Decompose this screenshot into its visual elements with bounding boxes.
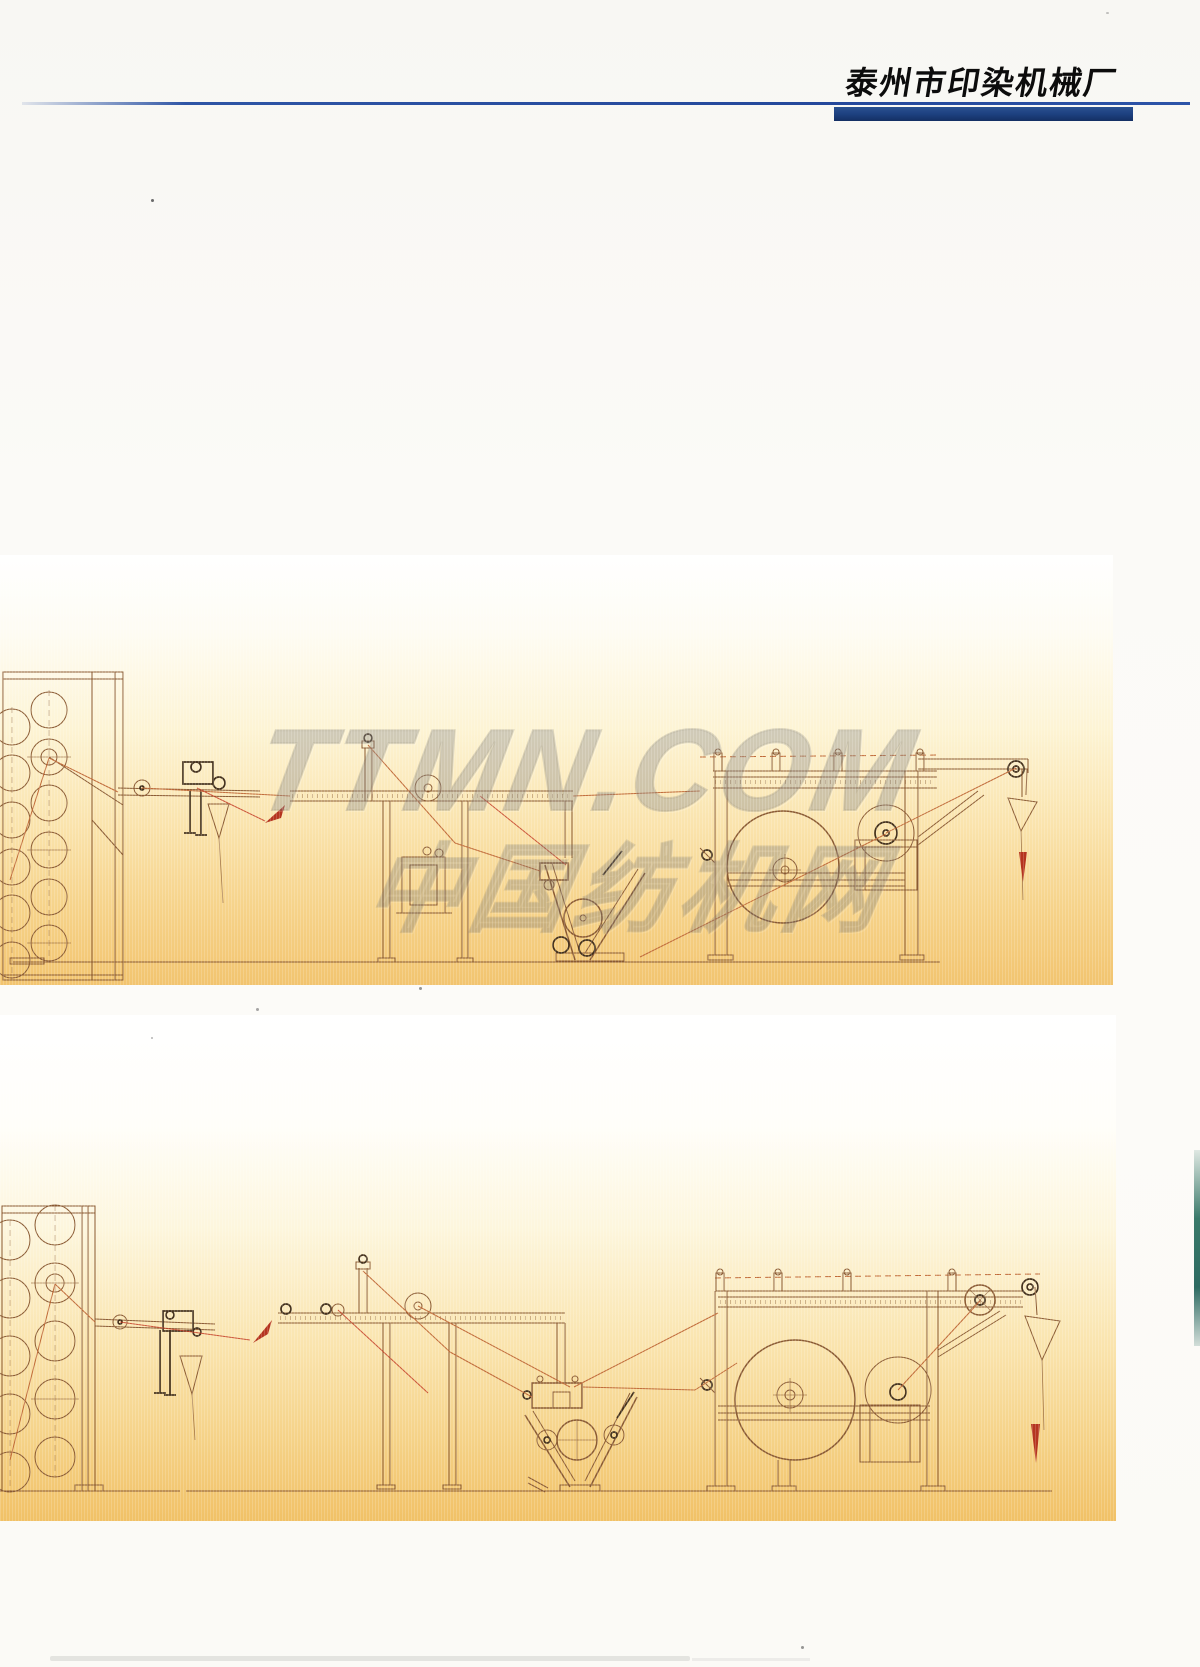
feed-mechanism	[95, 1311, 215, 1440]
scan-bottom-smudge	[692, 1658, 810, 1661]
feed-mechanism	[118, 762, 260, 903]
machinery-drawing-2	[0, 1015, 1116, 1521]
rail-table	[278, 1255, 565, 1489]
drum-machine	[700, 1269, 1060, 1491]
scan-bottom-smudge	[50, 1656, 690, 1661]
roller-frame	[0, 1205, 103, 1492]
scan-speck	[256, 1008, 259, 1011]
scan-speck	[151, 199, 154, 202]
scan-speck	[801, 1646, 804, 1649]
scan-speck	[1106, 12, 1109, 14]
header-accent-bar	[834, 107, 1133, 121]
scan-speck	[151, 1037, 153, 1039]
red-fabric-arrow-right	[1031, 1424, 1040, 1463]
scan-edge-strip	[1194, 1150, 1200, 1346]
red-fabric-arrow-left	[253, 1320, 272, 1343]
diagram-band-2	[0, 1015, 1116, 1521]
scanned-catalog-page: 泰州市印染机械厂	[0, 0, 1200, 1667]
diagram-band-1: TTMN.COM 中国纺机网	[0, 555, 1113, 985]
scan-speck	[419, 987, 422, 990]
watermark-ttmn: TTMN.COM	[248, 712, 925, 828]
padder-machine	[523, 1376, 637, 1492]
red-fabric-arrow-right	[1019, 852, 1027, 882]
fabric-threads	[10, 1271, 980, 1460]
roller-frame	[0, 672, 123, 980]
watermark-cn-textile-net: 中国纺机网	[360, 843, 897, 939]
page-title: 泰州市印染机械厂	[842, 58, 1121, 104]
header-rule-line	[22, 102, 1190, 105]
